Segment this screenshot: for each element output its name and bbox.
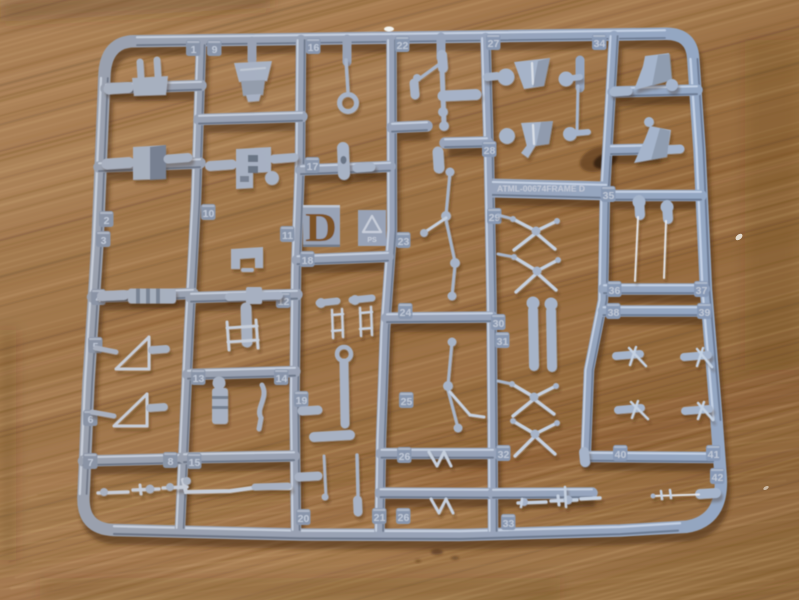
svg-text:39: 39 [699,307,711,319]
svg-text:3: 3 [101,235,107,247]
svg-text:37: 37 [696,285,708,297]
svg-text:2: 2 [104,215,110,227]
svg-text:26: 26 [398,512,410,524]
svg-text:8: 8 [168,456,174,468]
svg-text:7: 7 [88,457,94,469]
svg-text:24: 24 [400,307,412,319]
svg-text:34: 34 [594,38,606,50]
svg-text:22: 22 [397,40,409,52]
svg-text:28: 28 [484,145,496,157]
svg-text:1: 1 [191,44,197,56]
svg-text:42: 42 [712,472,724,484]
svg-text:32: 32 [498,449,510,461]
svg-text:15: 15 [189,457,201,469]
svg-text:16: 16 [308,42,320,54]
svg-text:36: 36 [609,285,621,297]
svg-text:ATML-00674FRAME D: ATML-00674FRAME D [497,185,585,194]
svg-text:35: 35 [603,190,615,202]
svg-text:30: 30 [493,318,505,330]
svg-text:33: 33 [503,518,515,530]
svg-text:10: 10 [203,208,215,220]
svg-text:13: 13 [193,373,205,385]
svg-text:D: D [305,205,337,250]
svg-text:11: 11 [282,230,293,242]
svg-text:PS: PS [367,237,377,244]
svg-text:23: 23 [398,236,410,248]
svg-text:38: 38 [608,307,620,319]
svg-text:25: 25 [401,396,413,408]
svg-text:29: 29 [489,212,501,224]
svg-text:9: 9 [212,44,218,56]
svg-text:17: 17 [307,161,319,173]
svg-text:18: 18 [302,255,314,267]
svg-text:41: 41 [708,449,720,461]
svg-text:21: 21 [374,512,386,524]
svg-text:26: 26 [399,451,411,463]
svg-text:40: 40 [615,449,627,461]
svg-text:19: 19 [296,395,308,407]
svg-text:27: 27 [488,38,500,50]
svg-text:20: 20 [298,513,310,525]
svg-text:14: 14 [276,373,288,385]
svg-text:31: 31 [497,336,509,348]
